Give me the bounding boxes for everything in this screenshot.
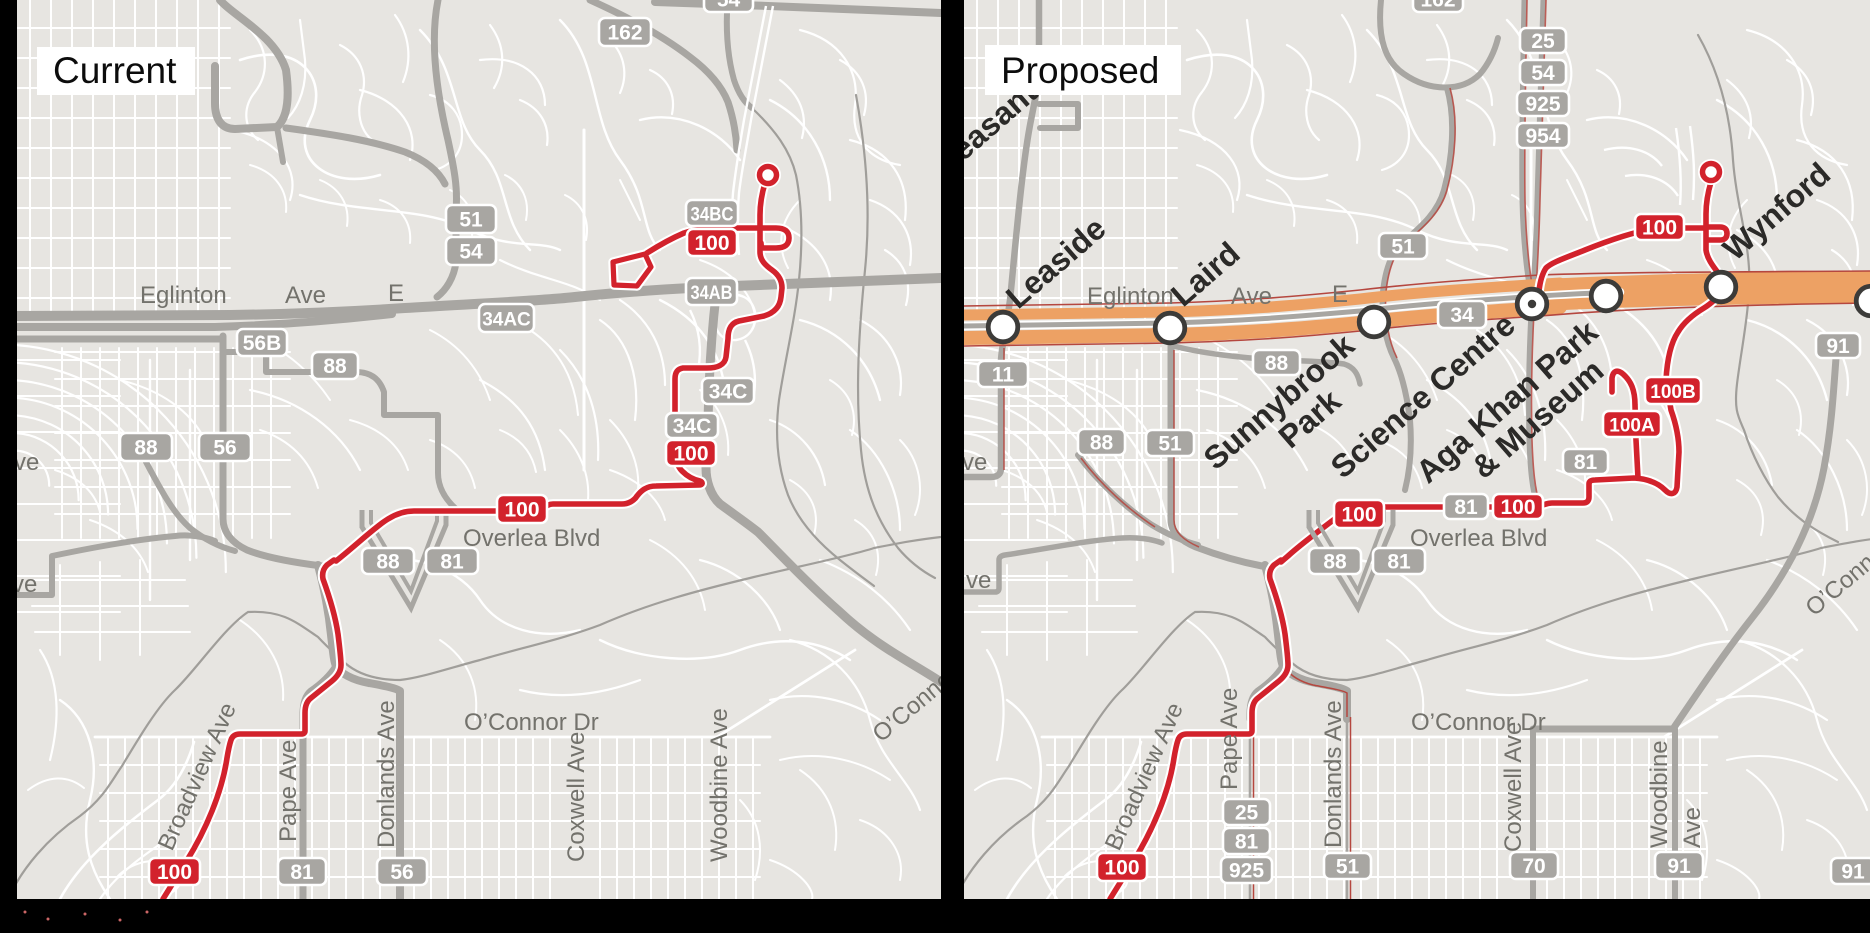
svg-text:100: 100 [1642,217,1677,240]
svg-text:ve: ve [966,567,991,594]
svg-text:70: 70 [1522,855,1545,878]
svg-text:100: 100 [157,861,192,884]
svg-text:Proposed: Proposed [1001,50,1159,91]
svg-text:100: 100 [504,499,539,522]
svg-text:91: 91 [1826,335,1850,358]
svg-text:88: 88 [1090,432,1114,455]
svg-text:88: 88 [134,437,158,460]
svg-text:Coxwell Ave: Coxwell Ave [1500,722,1527,852]
svg-text:Ave: Ave [1679,807,1706,848]
svg-text:925: 925 [1229,860,1264,883]
svg-text:Ave: Ave [1231,283,1272,310]
svg-text:Current: Current [53,50,177,91]
svg-text:88: 88 [323,355,347,378]
svg-text:81: 81 [1454,496,1478,519]
svg-text:54: 54 [459,241,483,264]
svg-text:34AB: 34AB [691,283,733,304]
svg-text:100A: 100A [1609,416,1655,437]
svg-text:100: 100 [694,232,729,255]
svg-text:56B: 56B [243,332,282,355]
svg-text:100B: 100B [1650,382,1695,403]
svg-text:56: 56 [213,437,236,460]
svg-text:81: 81 [290,861,314,884]
svg-text:925: 925 [1525,93,1560,116]
svg-text:E: E [1332,281,1348,308]
svg-text:51: 51 [1391,236,1415,259]
svg-text:34AC: 34AC [482,310,531,331]
svg-text:Woodbine: Woodbine [1646,740,1673,848]
svg-text:11: 11 [992,364,1015,387]
svg-text:91: 91 [1667,855,1691,878]
svg-text:54: 54 [1531,62,1555,85]
svg-text:34BC: 34BC [691,205,734,226]
svg-text:954: 954 [1525,125,1560,148]
svg-text:Pape Ave: Pape Ave [1216,688,1243,790]
svg-text:34C: 34C [709,381,748,404]
svg-text:Woodbine Ave: Woodbine Ave [706,708,733,862]
svg-text:100: 100 [673,443,708,466]
svg-text:100: 100 [1341,504,1376,527]
svg-text:162: 162 [607,22,642,45]
svg-text:Eglinton: Eglinton [140,282,227,309]
svg-text:91: 91 [1841,861,1865,884]
svg-text:56: 56 [390,861,413,884]
svg-text:100: 100 [1500,496,1535,519]
svg-text:Pape Ave: Pape Ave [275,740,302,842]
svg-text:ve: ve [14,449,39,476]
svg-text:51: 51 [1158,433,1182,456]
svg-text:81: 81 [1574,451,1598,474]
svg-text:25: 25 [1531,30,1555,53]
svg-text:81: 81 [1235,831,1259,854]
svg-text:Ave: Ave [285,282,326,309]
svg-text:25: 25 [1235,802,1259,825]
svg-text:Coxwell Ave: Coxwell Ave [563,732,590,862]
svg-text:51: 51 [459,209,483,232]
svg-text:51: 51 [1336,856,1360,879]
svg-text:34C: 34C [673,415,712,438]
svg-text:162: 162 [1420,0,1455,12]
svg-text:100: 100 [1104,857,1139,880]
svg-text:54: 54 [717,0,741,12]
svg-text:E: E [388,280,404,307]
svg-text:Eglinton: Eglinton [1087,283,1174,310]
svg-text:88: 88 [1265,352,1289,375]
svg-text:34: 34 [1450,304,1474,327]
svg-text:ve: ve [962,449,987,476]
